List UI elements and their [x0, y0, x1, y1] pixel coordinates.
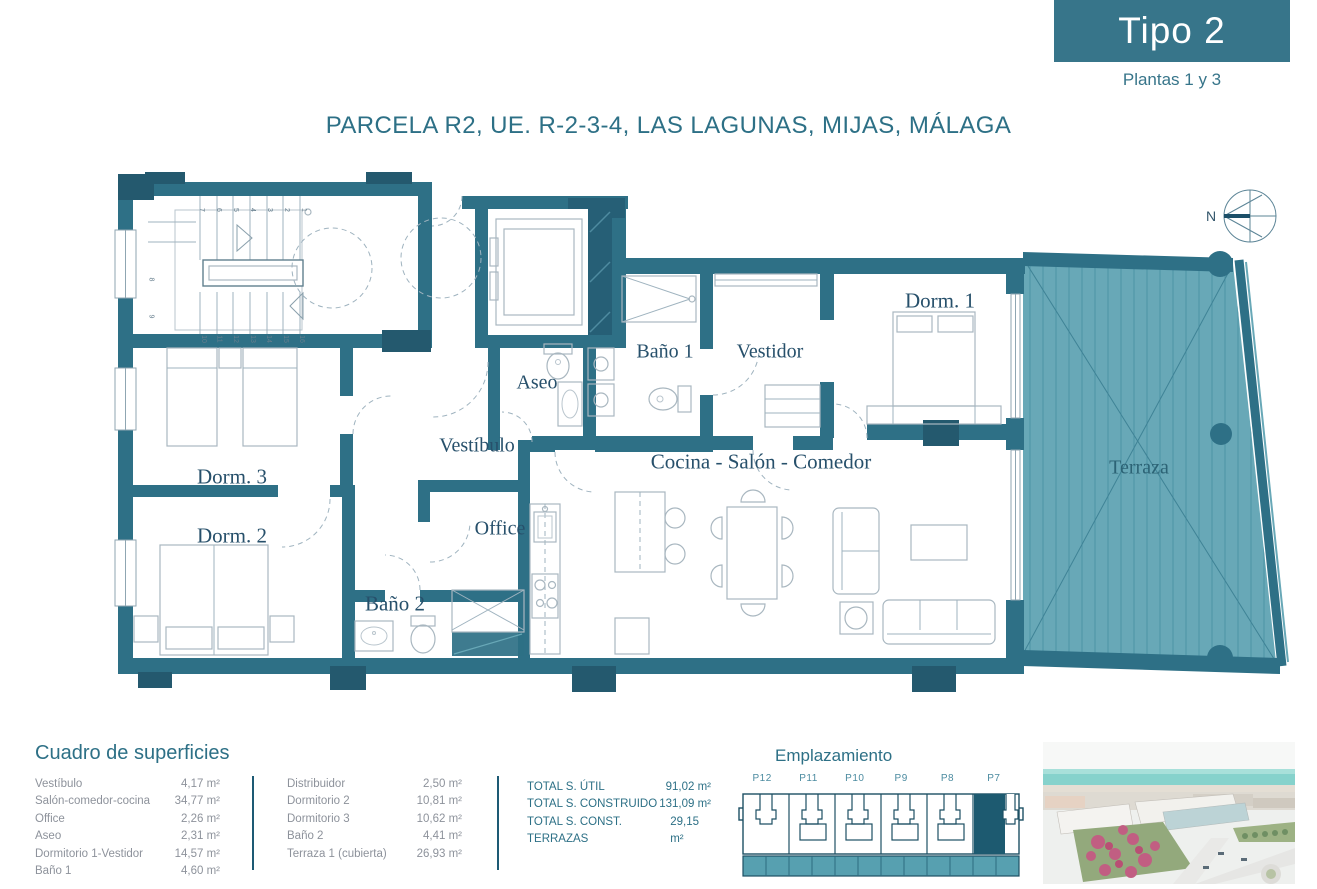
- floorplan-sheet: Tipo 2 Plantas 1 y 3 PARCELA R2, UE. R-2…: [0, 0, 1317, 889]
- unit-label: P12: [739, 773, 785, 784]
- surfaces-totals: TOTAL S. ÚTIL 91,02 m² TOTAL S. CONSTRUI…: [527, 779, 711, 831]
- room-label-dorm2: Dorm. 2: [197, 524, 267, 549]
- stair-step-number: 6: [210, 208, 222, 212]
- window: [115, 540, 136, 606]
- surface-label: Terraza 1 (cubierta): [287, 846, 387, 863]
- surface-row: Dormitorio 1-Vestidor 14,57 m²: [35, 846, 220, 863]
- room-dorm2-furniture: [134, 545, 294, 655]
- total-value: 29,15 m²: [670, 814, 711, 831]
- surface-label: Dormitorio 2: [287, 793, 350, 810]
- surface-row: Baño 2 4,41 m²: [287, 828, 462, 845]
- emplazamiento-title: Emplazamiento: [775, 746, 892, 766]
- room-label-salon: Cocina - Salón - Comedor: [651, 450, 871, 475]
- surfaces-column-2: Distribuidor 2,50 m² Dormitorio 2 10,81 …: [287, 776, 462, 863]
- surface-value: 10,62 m²: [417, 811, 462, 828]
- stair-step-number: 11: [211, 335, 223, 342]
- surface-row: Terraza 1 (cubierta) 26,93 m²: [287, 846, 462, 863]
- surface-value: 10,81 m²: [417, 793, 462, 810]
- surface-row: Dormitorio 2 10,81 m²: [287, 793, 462, 810]
- surfaces-column-1: Vestíbulo 4,17 m² Salón-comedor-cocina 3…: [35, 776, 220, 880]
- surface-label: Vestíbulo: [35, 776, 82, 793]
- surface-value: 34,77 m²: [175, 793, 220, 810]
- surface-value: 4,60 m²: [181, 863, 220, 880]
- room-label-vestidor: Vestidor: [737, 341, 804, 364]
- dining-furniture: [711, 490, 793, 616]
- living-furniture: [833, 508, 995, 644]
- type-badge: Tipo 2: [1054, 0, 1290, 62]
- terrace-column: [1207, 251, 1233, 277]
- unit-label: P9: [878, 773, 924, 784]
- table-divider: [252, 776, 254, 870]
- aerial-render-photo: [1043, 742, 1295, 884]
- unit-label: P11: [785, 773, 831, 784]
- terrace-column: [1207, 645, 1233, 671]
- surface-label: Salón-comedor-cocina: [35, 793, 150, 810]
- table-divider: [497, 776, 499, 870]
- emplazamiento-unit-labels: P12P11P10P9P8P7: [739, 773, 1017, 784]
- total-label: TOTAL S. ÚTIL: [527, 779, 605, 796]
- room-label-terraza: Terraza: [1109, 457, 1169, 480]
- total-label: TOTAL S. CONST. TERRAZAS: [527, 814, 670, 831]
- room-label-vestibulo: Vestíbulo: [439, 435, 515, 458]
- page-title: PARCELA R2, UE. R-2-3-4, LAS LAGUNAS, MI…: [20, 112, 1317, 140]
- total-value: 91,02 m²: [666, 779, 711, 796]
- total-label: TOTAL S. CONSTRUIDO: [527, 796, 657, 813]
- stair-numbers-left: 89: [146, 276, 156, 320]
- stair-step-number: 14: [260, 335, 272, 343]
- room-label-dorm3: Dorm. 3: [197, 465, 267, 490]
- stair-step-number: 7: [193, 208, 205, 212]
- surface-row: Baño 1 4,60 m²: [35, 863, 220, 880]
- stair-step-number: 10: [195, 335, 207, 343]
- surface-row: Dormitorio 3 10,62 m²: [287, 811, 462, 828]
- total-row: TOTAL S. CONSTRUIDO 131,09 m²: [527, 796, 711, 813]
- room-dorm3-furniture: [167, 348, 297, 446]
- windows: [115, 230, 136, 606]
- stair-numbers-bottom: 10111213141516: [197, 333, 303, 345]
- surface-label: Aseo: [35, 828, 61, 845]
- room-label-bano1: Baño 1: [636, 341, 693, 364]
- highlighted-unit-p7: [974, 794, 1005, 854]
- surface-label: Office: [35, 811, 65, 828]
- total-value: 131,09 m²: [659, 796, 711, 813]
- unit-label: P8: [924, 773, 970, 784]
- stair-step-number: 8: [148, 278, 155, 282]
- room-dorm1-furniture: [867, 312, 1001, 424]
- surface-row: Office 2,26 m²: [35, 811, 220, 828]
- emplazamiento-site-plan: .o{fill:#fff;stroke:#1d4f63;stroke-width…: [738, 792, 1024, 884]
- elevator: [488, 209, 588, 335]
- surface-value: 2,50 m²: [423, 776, 462, 793]
- stair-step-number: 15: [277, 335, 289, 343]
- surfaces-table-title: Cuadro de superficies: [35, 742, 230, 765]
- stair-step-number: 1: [295, 208, 307, 212]
- stair-numbers-top: 7654321: [197, 204, 303, 216]
- surface-value: 2,26 m²: [181, 811, 220, 828]
- stair-step-number: 4: [244, 208, 256, 212]
- surface-label: Baño 1: [35, 863, 71, 880]
- room-label-office: Office: [475, 518, 526, 541]
- type-badge-label: Tipo 2: [1118, 10, 1225, 52]
- room-label-dorm1: Dorm. 1: [905, 289, 975, 314]
- surface-value: 26,93 m²: [417, 846, 462, 863]
- unit-label: P10: [832, 773, 878, 784]
- surface-row: Salón-comedor-cocina 34,77 m²: [35, 793, 220, 810]
- total-row: TOTAL S. CONST. TERRAZAS 29,15 m²: [527, 814, 711, 831]
- surface-value: 14,57 m²: [175, 846, 220, 863]
- stair-step-number: 13: [244, 335, 256, 343]
- surface-value: 4,17 m²: [181, 776, 220, 793]
- kitchen-furniture: [530, 492, 685, 654]
- stair-step-number: 2: [278, 208, 290, 212]
- stair-step-number: 3: [261, 208, 273, 212]
- window: [115, 368, 136, 430]
- surface-row: Distribuidor 2,50 m²: [287, 776, 462, 793]
- surface-value: 2,31 m²: [181, 828, 220, 845]
- surface-row: Vestíbulo 4,17 m²: [35, 776, 220, 793]
- surface-label: Dormitorio 1-Vestidor: [35, 846, 143, 863]
- floors-subtitle: Plantas 1 y 3: [1054, 70, 1290, 90]
- surface-row: Aseo 2,31 m²: [35, 828, 220, 845]
- window: [115, 230, 136, 298]
- floor-plan-drawing: .w{fill:#2e7086}.wd{fill:#24596e} .f{fil…: [100, 172, 1290, 692]
- room-label-aseo: Aseo: [516, 372, 557, 395]
- terrace-column: [1210, 423, 1232, 445]
- unit-label: P7: [971, 773, 1017, 784]
- surface-label: Dormitorio 3: [287, 811, 350, 828]
- stair-step-number: 5: [227, 208, 239, 212]
- surface-value: 4,41 m²: [423, 828, 462, 845]
- stair-step-number: 16: [293, 335, 305, 343]
- surface-label: Baño 2: [287, 828, 323, 845]
- room-label-bano2: Baño 2: [365, 592, 425, 617]
- stair-step-number: 12: [227, 335, 239, 343]
- stair-step-number: 9: [148, 315, 155, 319]
- surface-label: Distribuidor: [287, 776, 345, 793]
- total-row: TOTAL S. ÚTIL 91,02 m²: [527, 779, 711, 796]
